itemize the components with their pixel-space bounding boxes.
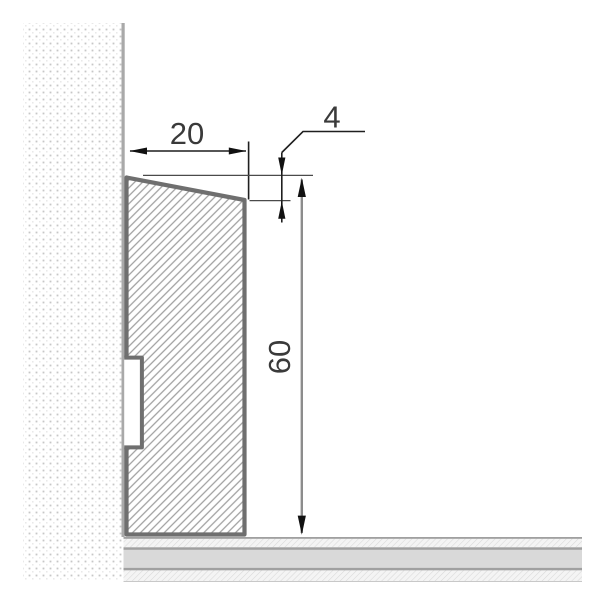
floor-core-layer bbox=[124, 550, 583, 568]
width-arrow-left-icon bbox=[130, 148, 148, 155]
floor-separator-lower bbox=[124, 568, 583, 571]
bevel-dimension-label: 4 bbox=[323, 100, 340, 135]
notch-border bbox=[124, 358, 142, 448]
floor-section bbox=[124, 537, 583, 582]
bevel-arrow-down-icon bbox=[278, 158, 285, 176]
wall-edge-line bbox=[122, 23, 125, 537]
bevel-leader-line bbox=[282, 132, 365, 153]
width-dimension-label: 20 bbox=[170, 116, 204, 151]
floor-top-line bbox=[124, 537, 583, 539]
wall-section bbox=[23, 23, 125, 582]
floor-separator-upper bbox=[124, 547, 583, 550]
dimension-height: 60 bbox=[262, 178, 306, 535]
width-arrow-right-icon bbox=[229, 148, 247, 155]
height-dimension-label: 60 bbox=[262, 340, 297, 374]
height-arrow-up-icon bbox=[298, 178, 306, 197]
height-arrow-down-icon bbox=[298, 516, 306, 535]
bevel-arrow-up-icon bbox=[278, 201, 285, 219]
floor-bottom-line bbox=[124, 581, 583, 582]
skirting-cross-section-drawing: 20 4 60 bbox=[0, 0, 604, 604]
floor-screed-upper bbox=[124, 539, 583, 547]
wall-stipple-area bbox=[23, 23, 122, 582]
profile-body bbox=[127, 178, 245, 535]
floor-screed-lower bbox=[124, 570, 583, 581]
technical-drawing-canvas: 20 4 60 bbox=[0, 0, 604, 604]
skirting-profile bbox=[124, 178, 244, 535]
